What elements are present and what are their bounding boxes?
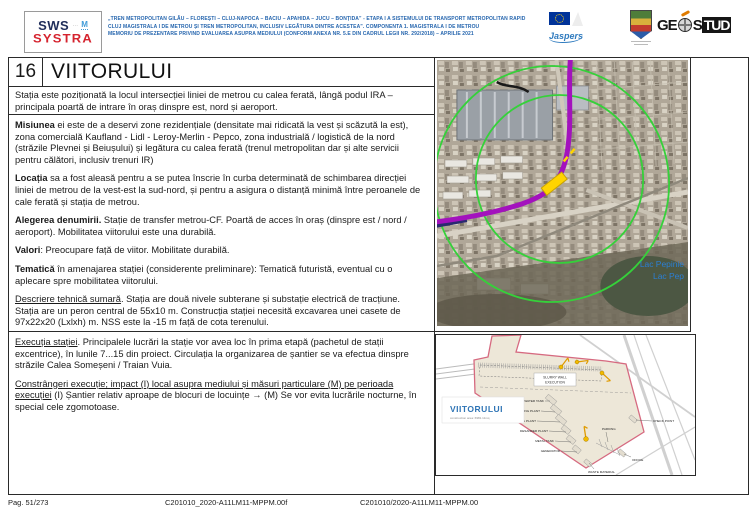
label-generator: GENERATOR: [541, 449, 561, 453]
site-plan: SLURRY WALL EXECUTION: [435, 334, 696, 476]
document-title-line-3: MEMORIU DE PREZENTARE PRIVIND EVALUAREA …: [108, 31, 546, 39]
plan-title: VIITORULUI: [450, 404, 503, 414]
jaspers-sail-icon: [572, 12, 583, 26]
geostud-ge-text: GE: [657, 18, 677, 33]
document-title: „TREN METROPOLITAN GILĂU – FLOREȘTI – CL…: [108, 16, 546, 39]
lake-label-2: Lac Pep: [653, 271, 684, 281]
jaspers-logo: Jaspers: [549, 12, 607, 44]
site-plan-drawing: SLURRY WALL EXECUTION: [436, 335, 695, 475]
label-desander-plant: DESANDER PLANT: [520, 429, 548, 433]
station-title-row: 16 VIITORULUI: [9, 58, 434, 87]
label-check-point: CHECK POINT: [653, 419, 674, 423]
label-slurry-wall-2: EXECUTION: [545, 381, 565, 385]
sws-logo-text: SWS: [38, 19, 69, 32]
station-number: 16: [9, 58, 43, 86]
metro-m-icon: M: [81, 21, 88, 30]
label-waste-material: WASTE MATERIAL: [588, 470, 615, 474]
geostud-s-text: S: [693, 18, 702, 33]
plan-subtitle: construction area: 6981.11mq: [450, 416, 490, 420]
details-section: Misiunea ei este de a deservi zone rezid…: [9, 115, 434, 332]
coat-of-arms-icon: [629, 10, 653, 45]
sws-systra-logo: SWS … M SYSTRA: [24, 11, 102, 53]
intro-section: Stația este poziționată la locul interse…: [9, 87, 434, 115]
footer-page-number: Pag. 51/273: [8, 498, 48, 507]
label-slurry-wall: SLURRY WALL: [543, 376, 567, 380]
document-title-line-1: „TREN METROPOLITAN GILĂU – FLOREȘTI – CL…: [108, 16, 546, 24]
footer-doc-code-left: C201010_2020-A11LM11-MPPM.00f: [165, 498, 287, 507]
logo-divider: …: [72, 22, 78, 28]
footer-doc-code-right: C201010/2020-A11LM11-MPPM.00: [360, 498, 478, 507]
pickaxe-icon: [681, 10, 690, 17]
satellite-map: Lac Pepinie Lac Pep: [435, 58, 691, 332]
eu-flag-icon: [549, 12, 570, 25]
station-text-column: 16 VIITORULUI Stația este poziționată la…: [9, 58, 435, 494]
globe-icon: [678, 18, 692, 32]
label-office: OFFICE: [632, 458, 643, 462]
page-title: VIITORULUI: [43, 58, 172, 86]
systra-logo-text: SYSTRA: [33, 32, 93, 45]
label-metal-tank: METAL TANK: [535, 439, 555, 443]
document-title-line-2: CLUJ MAGISTRALA I DE METROU ȘI TREN METR…: [108, 24, 546, 32]
execution-section: Execuția stației. Principalele lucrări l…: [9, 332, 434, 414]
label-water-tank: WATER TANK: [524, 399, 545, 403]
geostud-logo: GE S TUD: [657, 17, 731, 33]
geostud-tud-text: TUD: [702, 17, 732, 33]
lake-label-1: Lac Pepinie: [640, 259, 684, 269]
station-sheet-table: 16 VIITORULUI Stația este poziționată la…: [8, 57, 749, 495]
satellite-map-image: Lac Pepinie Lac Pep: [437, 60, 688, 326]
label-parking: PARKING: [602, 427, 616, 431]
jaspers-label: Jaspers: [549, 31, 583, 43]
